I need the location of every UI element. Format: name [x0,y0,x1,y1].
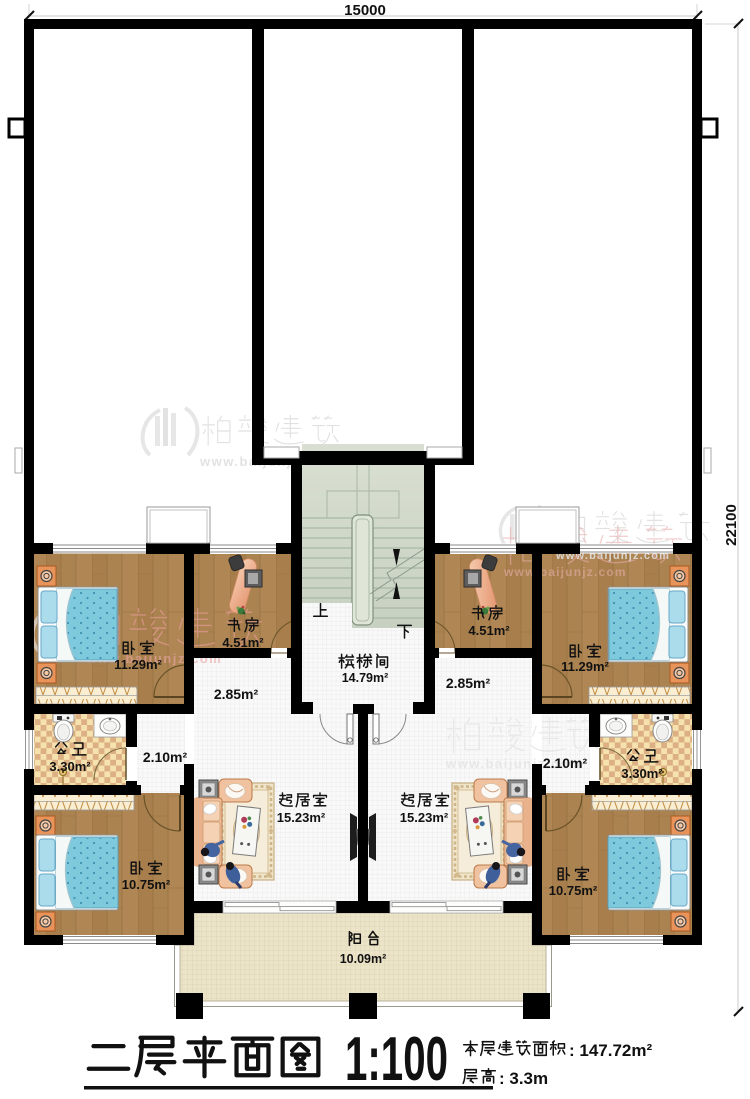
svg-text:11.29m²: 11.29m² [561,659,609,674]
svg-text:15.23m²: 15.23m² [400,810,449,825]
svg-text:10.09m²: 10.09m² [340,952,387,966]
svg-text:4.51m²: 4.51m² [222,635,264,650]
svg-text:3.30m²: 3.30m² [49,759,91,774]
svg-text:2.85m²: 2.85m² [214,686,259,702]
svg-text:22100: 22100 [723,504,740,546]
svg-text:10.75m²: 10.75m² [549,883,598,898]
svg-text:4.51m²: 4.51m² [468,623,510,638]
svg-text:1:100: 1:100 [345,1025,448,1094]
svg-text:10.75m²: 10.75m² [122,877,171,892]
svg-text:15.23m²: 15.23m² [277,810,326,825]
svg-text:2.10m²: 2.10m² [543,755,588,771]
svg-text:: 3.3m: : 3.3m [499,1069,548,1088]
svg-text:2.85m²: 2.85m² [446,675,491,691]
svg-text:3.30m²: 3.30m² [621,766,663,781]
svg-text:11.29m²: 11.29m² [114,657,162,672]
svg-text:15000: 15000 [344,2,386,19]
svg-text:2.10m²: 2.10m² [143,749,188,765]
svg-text:www.baijunjz.com: www.baijunjz.com [503,565,627,579]
svg-text:: 147.72m²: : 147.72m² [569,1041,652,1060]
svg-text:14.79m²: 14.79m² [342,671,389,685]
